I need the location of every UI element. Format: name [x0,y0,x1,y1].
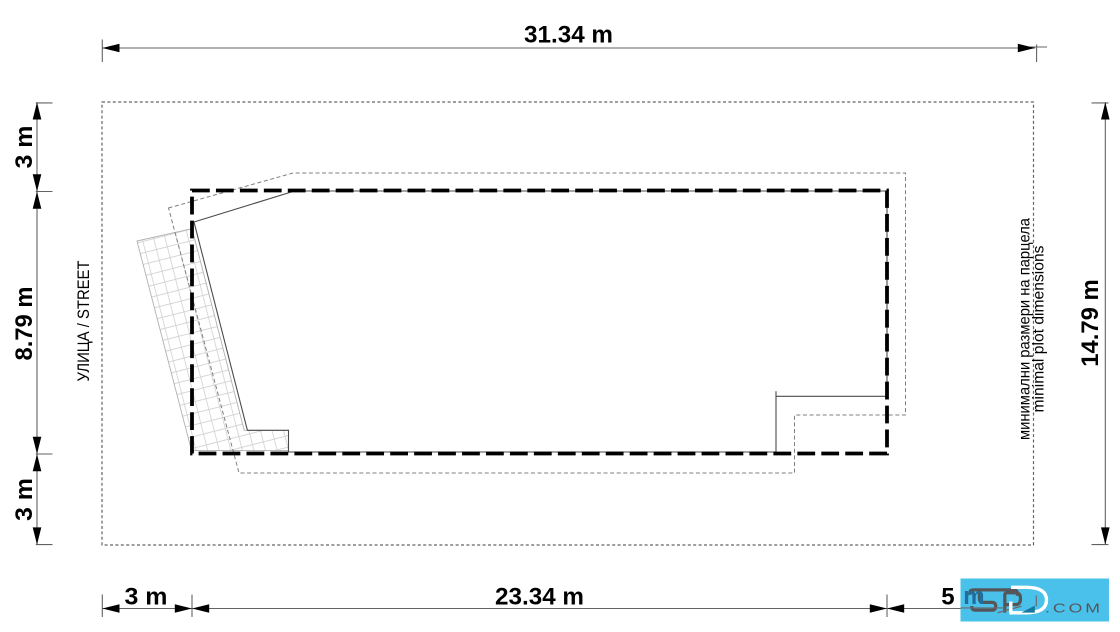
svg-text:minimal plot dimensions: minimal plot dimensions [1031,245,1048,412]
svg-text:31.34 m: 31.34 m [524,22,613,49]
svg-text:23.34 m: 23.34 m [495,584,584,611]
svg-text:УЛИЦА / STREET: УЛИЦА / STREET [74,261,93,382]
svg-text:14.79 m: 14.79 m [1077,279,1104,367]
svg-text:5: 5 [941,584,954,611]
svg-text:m: m [963,583,984,610]
svg-text:.COM: .COM [1045,600,1103,615]
svg-text:3 m: 3 m [125,584,168,611]
svg-text:3 m: 3 m [11,478,38,521]
svg-text:3 m: 3 m [11,126,38,169]
svg-text:8.79 m: 8.79 m [11,287,38,361]
